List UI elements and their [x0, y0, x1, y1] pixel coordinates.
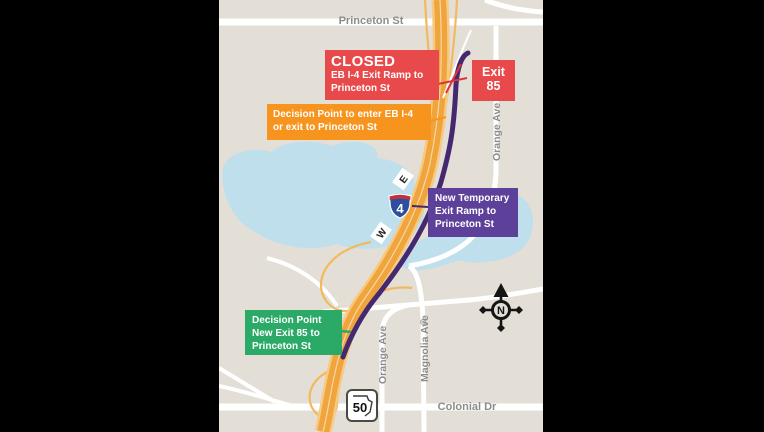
exit-85-line: Exit — [472, 65, 515, 79]
label-magnolia-ave: Magnolia Ave — [419, 315, 431, 382]
leader-decision-new-exit — [341, 331, 351, 332]
decision-new-exit-line: Decision Point — [252, 314, 335, 327]
callout-decision-enter: Decision Point to enter EB I-4 or exit t… — [267, 104, 431, 140]
state-route-number: 50 — [353, 400, 367, 415]
road-top-right-curve — [485, 0, 543, 12]
compass-north-label: N — [497, 305, 505, 317]
decision-enter-line: Decision Point to enter EB I-4 — [273, 108, 425, 121]
interstate-number: 4 — [396, 201, 404, 216]
label-orange-ave-bottom: Orange Ave — [377, 326, 389, 384]
sr-50-shield-icon: 50 — [347, 390, 377, 421]
road-lakeside — [267, 258, 337, 306]
callout-closed-title: CLOSED — [331, 53, 433, 70]
label-orange-ave-top: Orange Ave — [491, 103, 503, 161]
temporary-ramp-line: New Temporary — [435, 192, 511, 205]
temporary-ramp-line: Princeton St — [435, 218, 511, 231]
decision-new-exit-line: New Exit 85 to — [252, 327, 335, 340]
callout-temporary-ramp: New Temporary Exit Ramp to Princeton St — [428, 188, 518, 237]
decision-new-exit-line: Princeton St — [252, 340, 335, 353]
decision-enter-line: or exit to Princeton St — [273, 121, 425, 134]
label-princeton-st: Princeton St — [339, 15, 404, 27]
callout-closed: CLOSED EB I-4 Exit Ramp to Princeton St — [325, 50, 439, 100]
callout-exit-85: Exit 85 — [472, 60, 515, 101]
exit-85-line: 85 — [472, 79, 515, 93]
callout-decision-new-exit: Decision Point New Exit 85 to Princeton … — [245, 310, 342, 355]
compass-rose-icon: N — [479, 283, 523, 332]
callout-closed-line: Princeton St — [331, 83, 433, 96]
callout-closed-line: EB I-4 Exit Ramp to — [331, 70, 433, 83]
leader-temporary-ramp — [412, 206, 428, 207]
news-graphic-stage: E W 4 50 — [0, 0, 764, 432]
temporary-ramp-line: Exit Ramp to — [435, 205, 511, 218]
label-colonial-dr: Colonial Dr — [438, 401, 497, 413]
map-canvas: E W 4 50 — [219, 0, 543, 432]
